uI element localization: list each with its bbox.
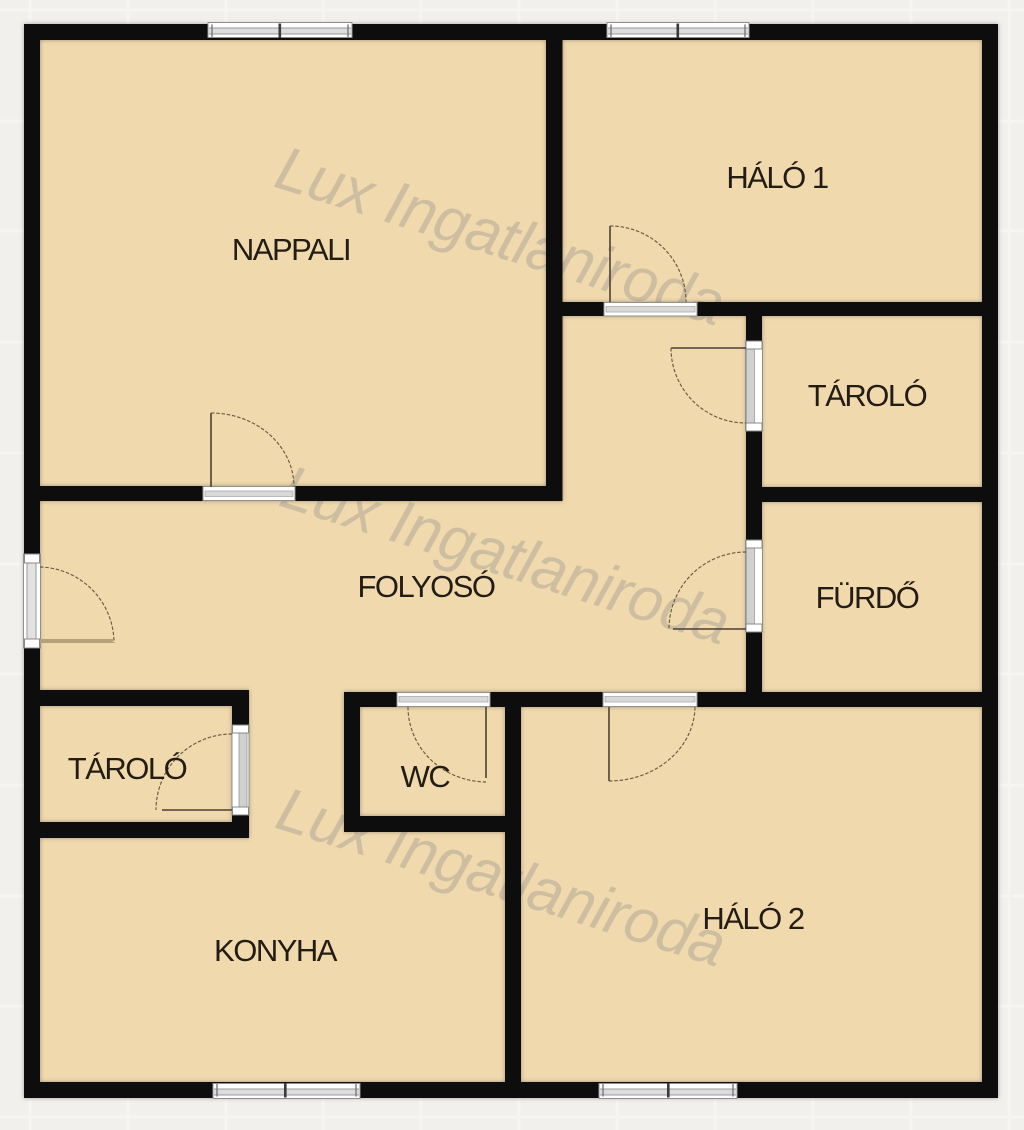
svg-text:FÜRDŐ: FÜRDŐ bbox=[816, 580, 919, 615]
svg-text:HÁLÓ 1: HÁLÓ 1 bbox=[726, 160, 828, 195]
svg-text:FOLYOSÓ: FOLYOSÓ bbox=[357, 569, 494, 604]
svg-text:TÁROLÓ: TÁROLÓ bbox=[68, 751, 187, 786]
svg-text:TÁROLÓ: TÁROLÓ bbox=[808, 378, 927, 413]
svg-text:NAPPALI: NAPPALI bbox=[232, 232, 350, 267]
svg-text:KONYHA: KONYHA bbox=[214, 933, 338, 968]
svg-text:HÁLÓ 2: HÁLÓ 2 bbox=[702, 901, 804, 936]
svg-text:WC: WC bbox=[401, 759, 451, 794]
